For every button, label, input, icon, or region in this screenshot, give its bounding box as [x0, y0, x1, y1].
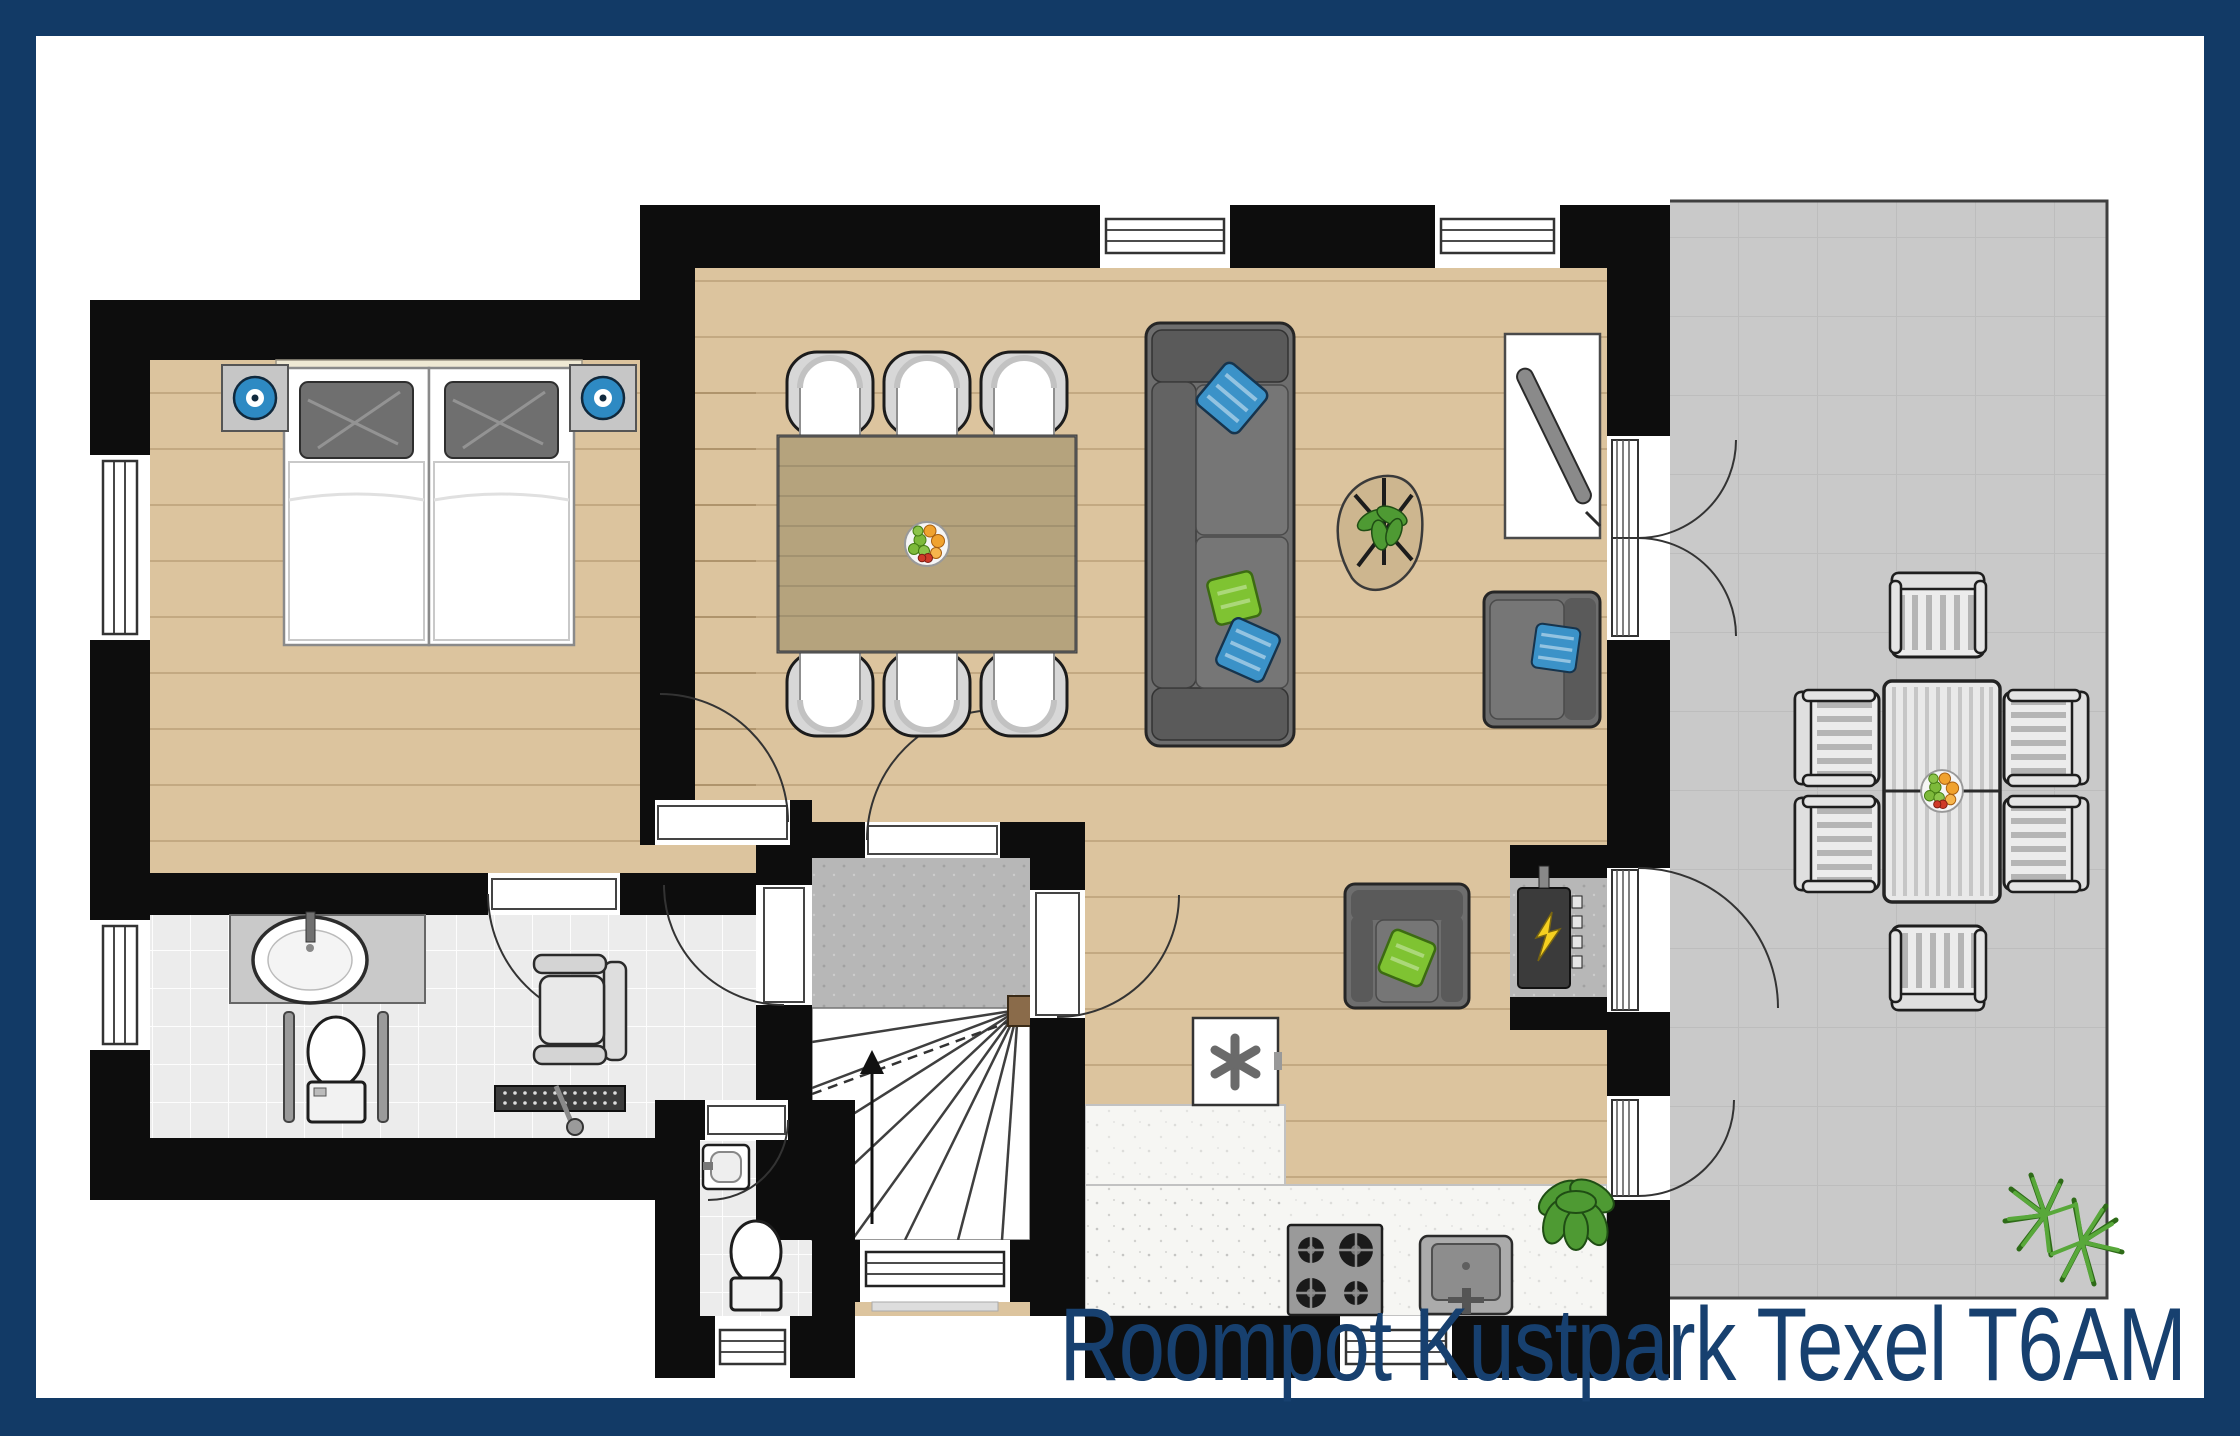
bathroom-sink [230, 912, 425, 1003]
outdoor-chair [2004, 690, 2088, 786]
grab-bar [378, 1012, 388, 1122]
tv-cabinet [1505, 334, 1600, 538]
fruit-bowl-icon [905, 522, 949, 566]
dining-chair [787, 352, 873, 436]
outdoor-chair [1890, 573, 1986, 657]
hall-floor [812, 858, 1030, 1008]
shower-head-icon [567, 1119, 583, 1135]
dining-area [778, 352, 1076, 736]
entrance-door [860, 1240, 1010, 1311]
window-top-1 [1100, 205, 1230, 268]
window-wc [715, 1316, 790, 1378]
duvet [289, 462, 424, 640]
window-bathroom [90, 920, 150, 1050]
green-pillow-icon [1206, 570, 1262, 626]
outdoor-chair [1795, 690, 1879, 786]
nightstand-left [222, 365, 288, 431]
meter-box [1518, 888, 1570, 988]
outdoor-chair [2004, 796, 2088, 892]
floorplan-svg: Roompot Kustpark Texel T6AM [0, 0, 2240, 1436]
fruit-bowl-icon [1921, 770, 1963, 812]
dining-chair [981, 652, 1067, 736]
bedroom [222, 360, 636, 645]
plan-title-group: Roompot Kustpark Texel T6AM [1059, 1286, 2186, 1402]
washing-machine [1193, 1018, 1282, 1105]
dining-chair [981, 352, 1067, 436]
bed-left [284, 368, 429, 645]
dining-chair [884, 652, 970, 736]
wc-sink [703, 1145, 749, 1189]
bed-right [429, 368, 574, 645]
dining-chair [787, 652, 873, 736]
window-bedroom [90, 455, 150, 640]
armchair-blue [1484, 592, 1600, 727]
duvet [434, 462, 569, 640]
coffee-table-with-plant [1338, 476, 1423, 590]
window-top-2 [1435, 205, 1560, 268]
meter-cupboard [1510, 866, 1607, 997]
sofa [1146, 323, 1294, 746]
shower-seat [534, 955, 626, 1064]
nightstand-right [570, 365, 636, 431]
floorplan-image: Roompot Kustpark Texel T6AM [0, 0, 2240, 1436]
blue-pillow-icon [1531, 623, 1581, 673]
plan-title: Roompot Kustpark Texel T6AM [1059, 1286, 2186, 1402]
grab-bar [284, 1012, 294, 1122]
armchair-green [1345, 884, 1469, 1008]
outdoor-chair [1890, 926, 1986, 1010]
dining-chair [884, 352, 970, 436]
wc-toilet [731, 1221, 781, 1310]
outdoor-chair [1795, 796, 1879, 892]
